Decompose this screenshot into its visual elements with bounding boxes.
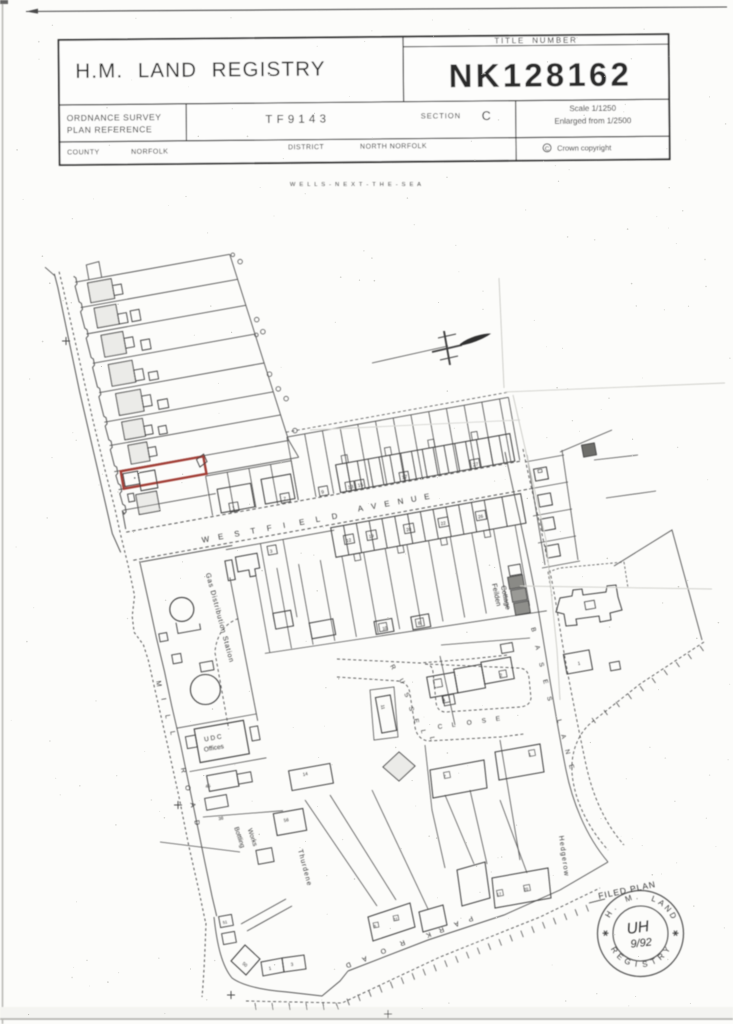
svg-text:C: C (545, 147, 550, 153)
svg-text:DISTRICT: DISTRICT (288, 144, 325, 151)
svg-text:TITLE NUMBER: TITLE NUMBER (494, 36, 577, 46)
svg-text:H.M. LAND REGISTRY: H.M. LAND REGISTRY (75, 57, 326, 82)
svg-text:C: C (482, 109, 491, 123)
svg-text:Enlarged from 1/2500: Enlarged from 1/2500 (554, 116, 632, 126)
svg-text:W E L L S - N E X T - T H E -: W E L L S - N E X T - T H E - S E A (290, 182, 422, 188)
svg-text:9/92: 9/92 (630, 936, 653, 950)
svg-text:Scale 1/1250: Scale 1/1250 (569, 104, 616, 113)
svg-text:NORTH NORFOLK: NORTH NORFOLK (360, 143, 427, 151)
svg-text:COUNTY: COUNTY (67, 149, 100, 156)
svg-text:O: O (466, 719, 472, 727)
svg-text:NK128162: NK128162 (448, 56, 632, 95)
svg-text:ORDNANCE SURVEY: ORDNANCE SURVEY (67, 112, 162, 123)
svg-text:TF9143: TF9143 (265, 113, 330, 126)
svg-text:Crown copyright: Crown copyright (557, 143, 612, 153)
svg-text:PLAN REFERENCE: PLAN REFERENCE (67, 124, 152, 135)
svg-text:SECTION: SECTION (421, 111, 461, 120)
svg-text:NORFOLK: NORFOLK (131, 148, 168, 155)
svg-text:UH: UH (626, 918, 651, 938)
